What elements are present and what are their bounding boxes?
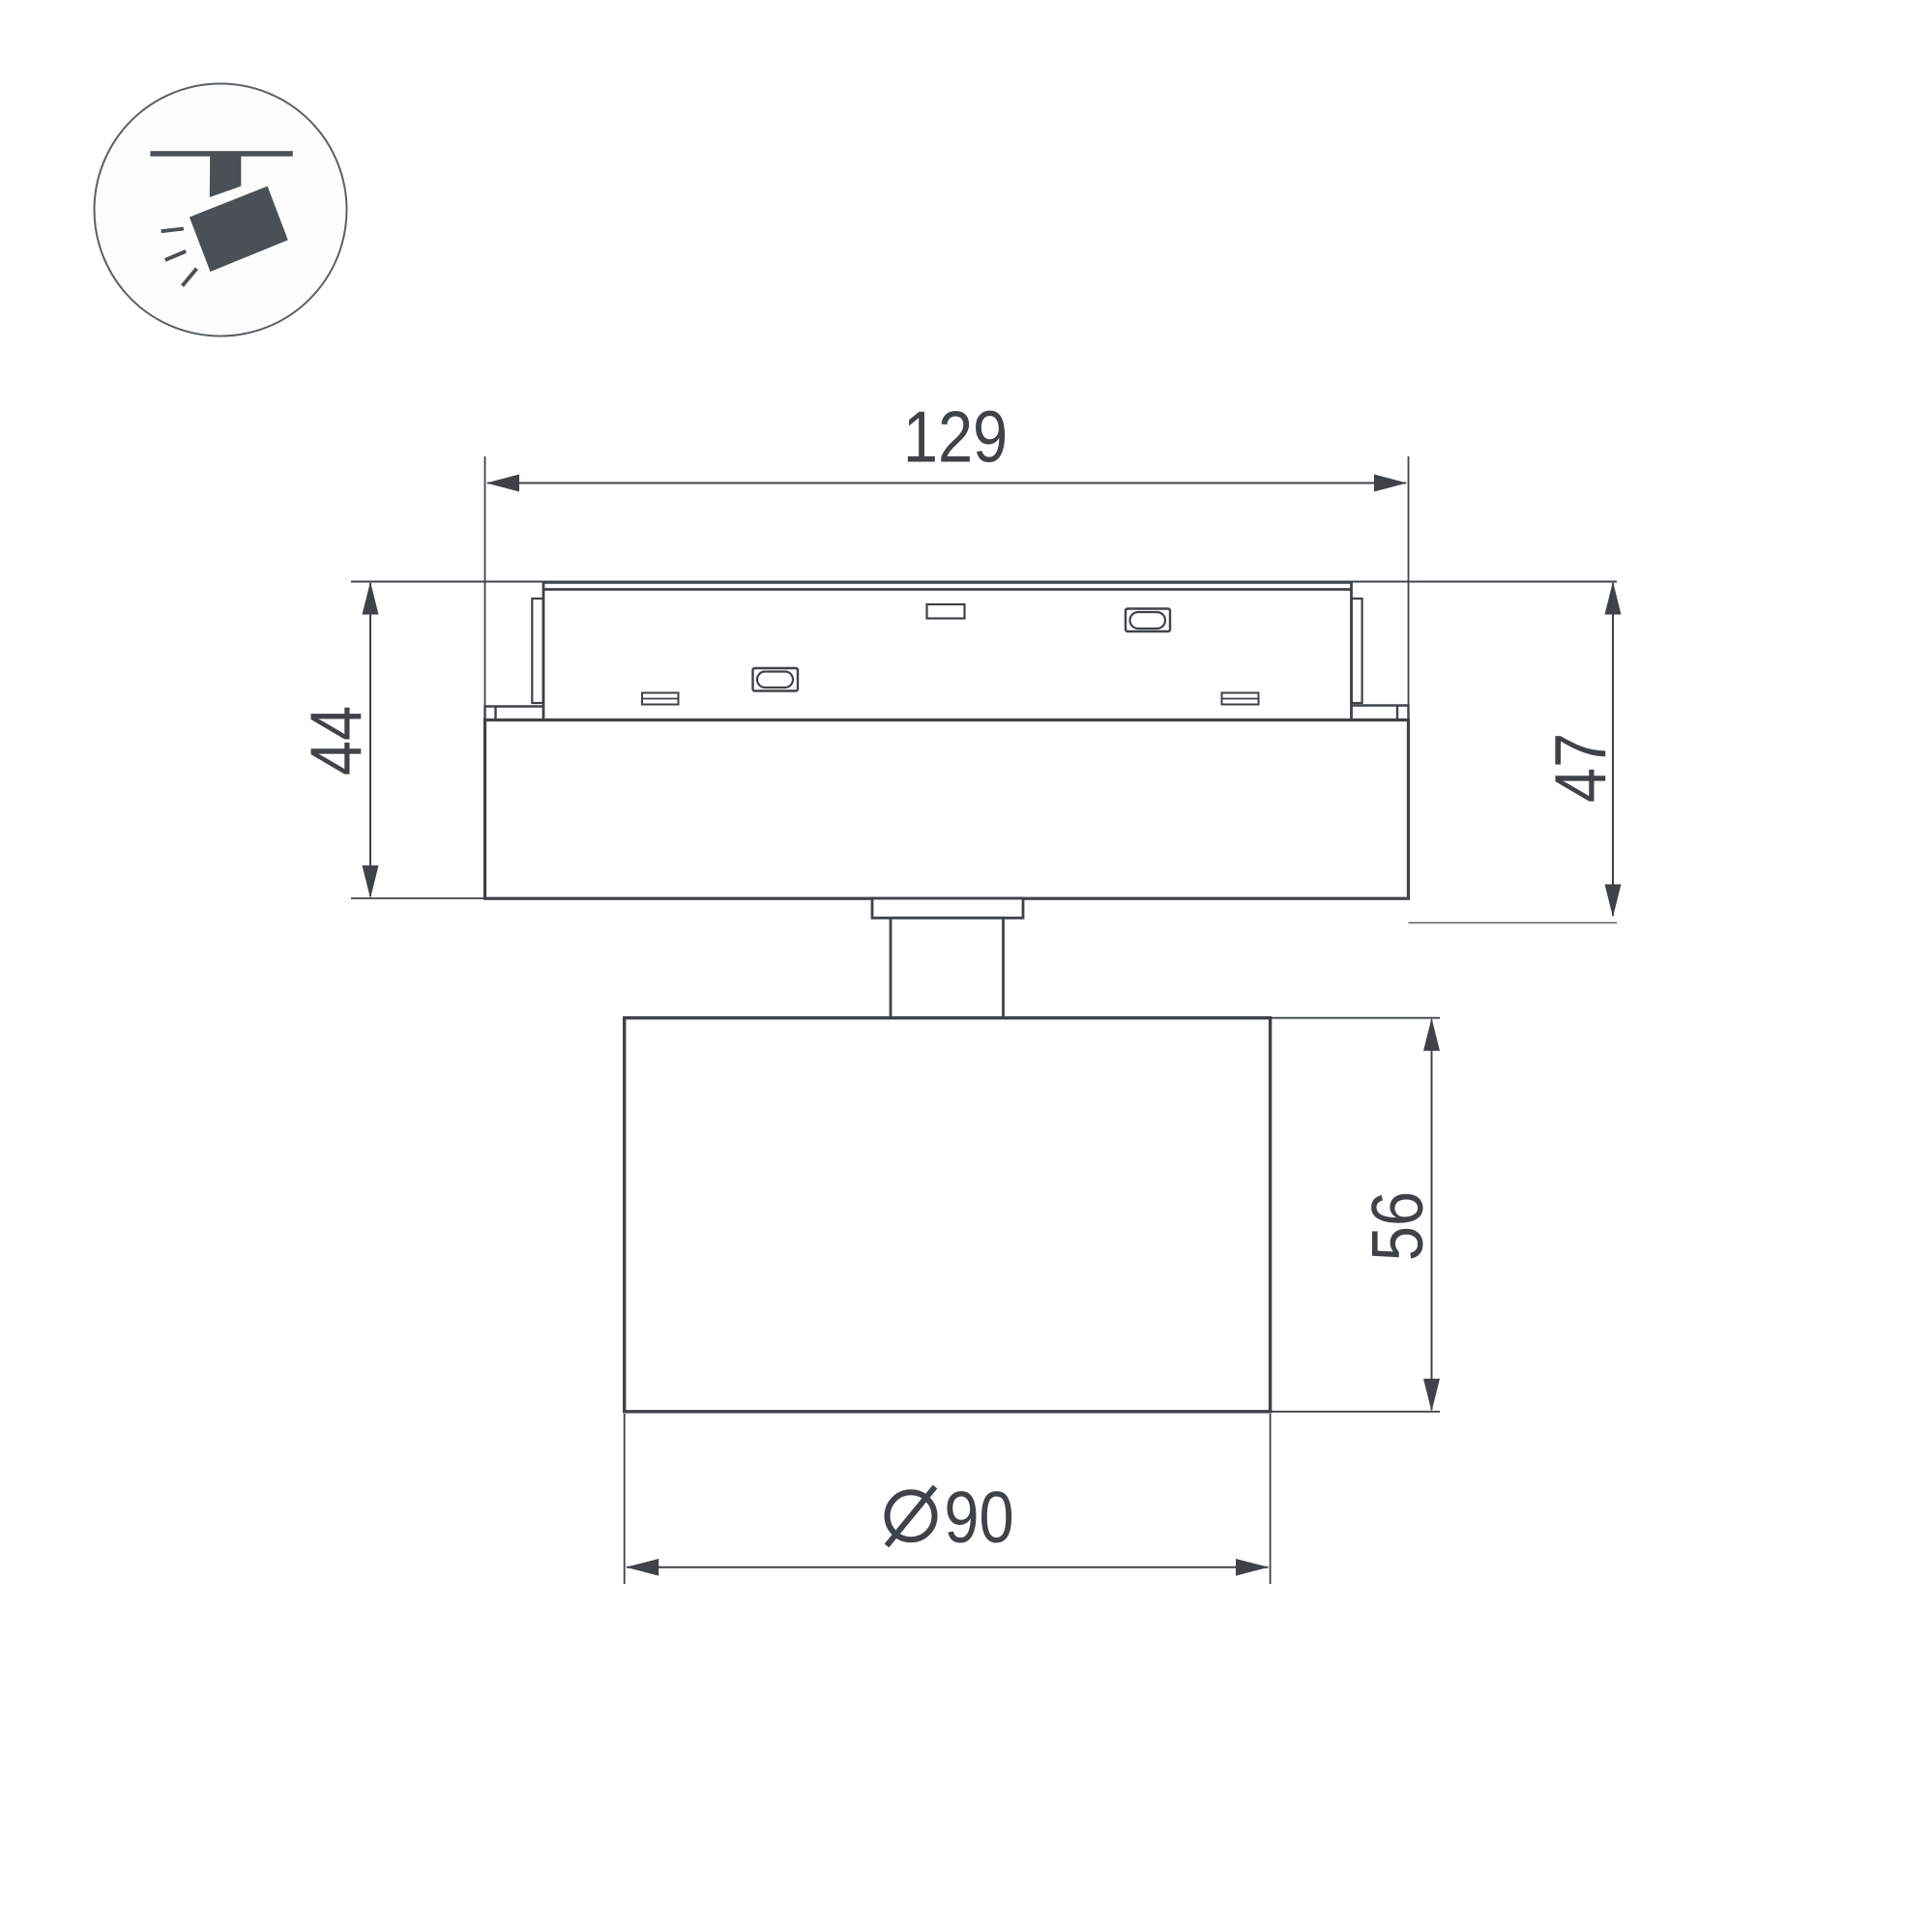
svg-text:129: 129 [903,395,1008,478]
svg-text:44: 44 [294,706,376,776]
svg-text:47: 47 [1538,733,1621,803]
svg-text:90: 90 [944,1476,1013,1558]
svg-text:56: 56 [1356,1191,1438,1261]
